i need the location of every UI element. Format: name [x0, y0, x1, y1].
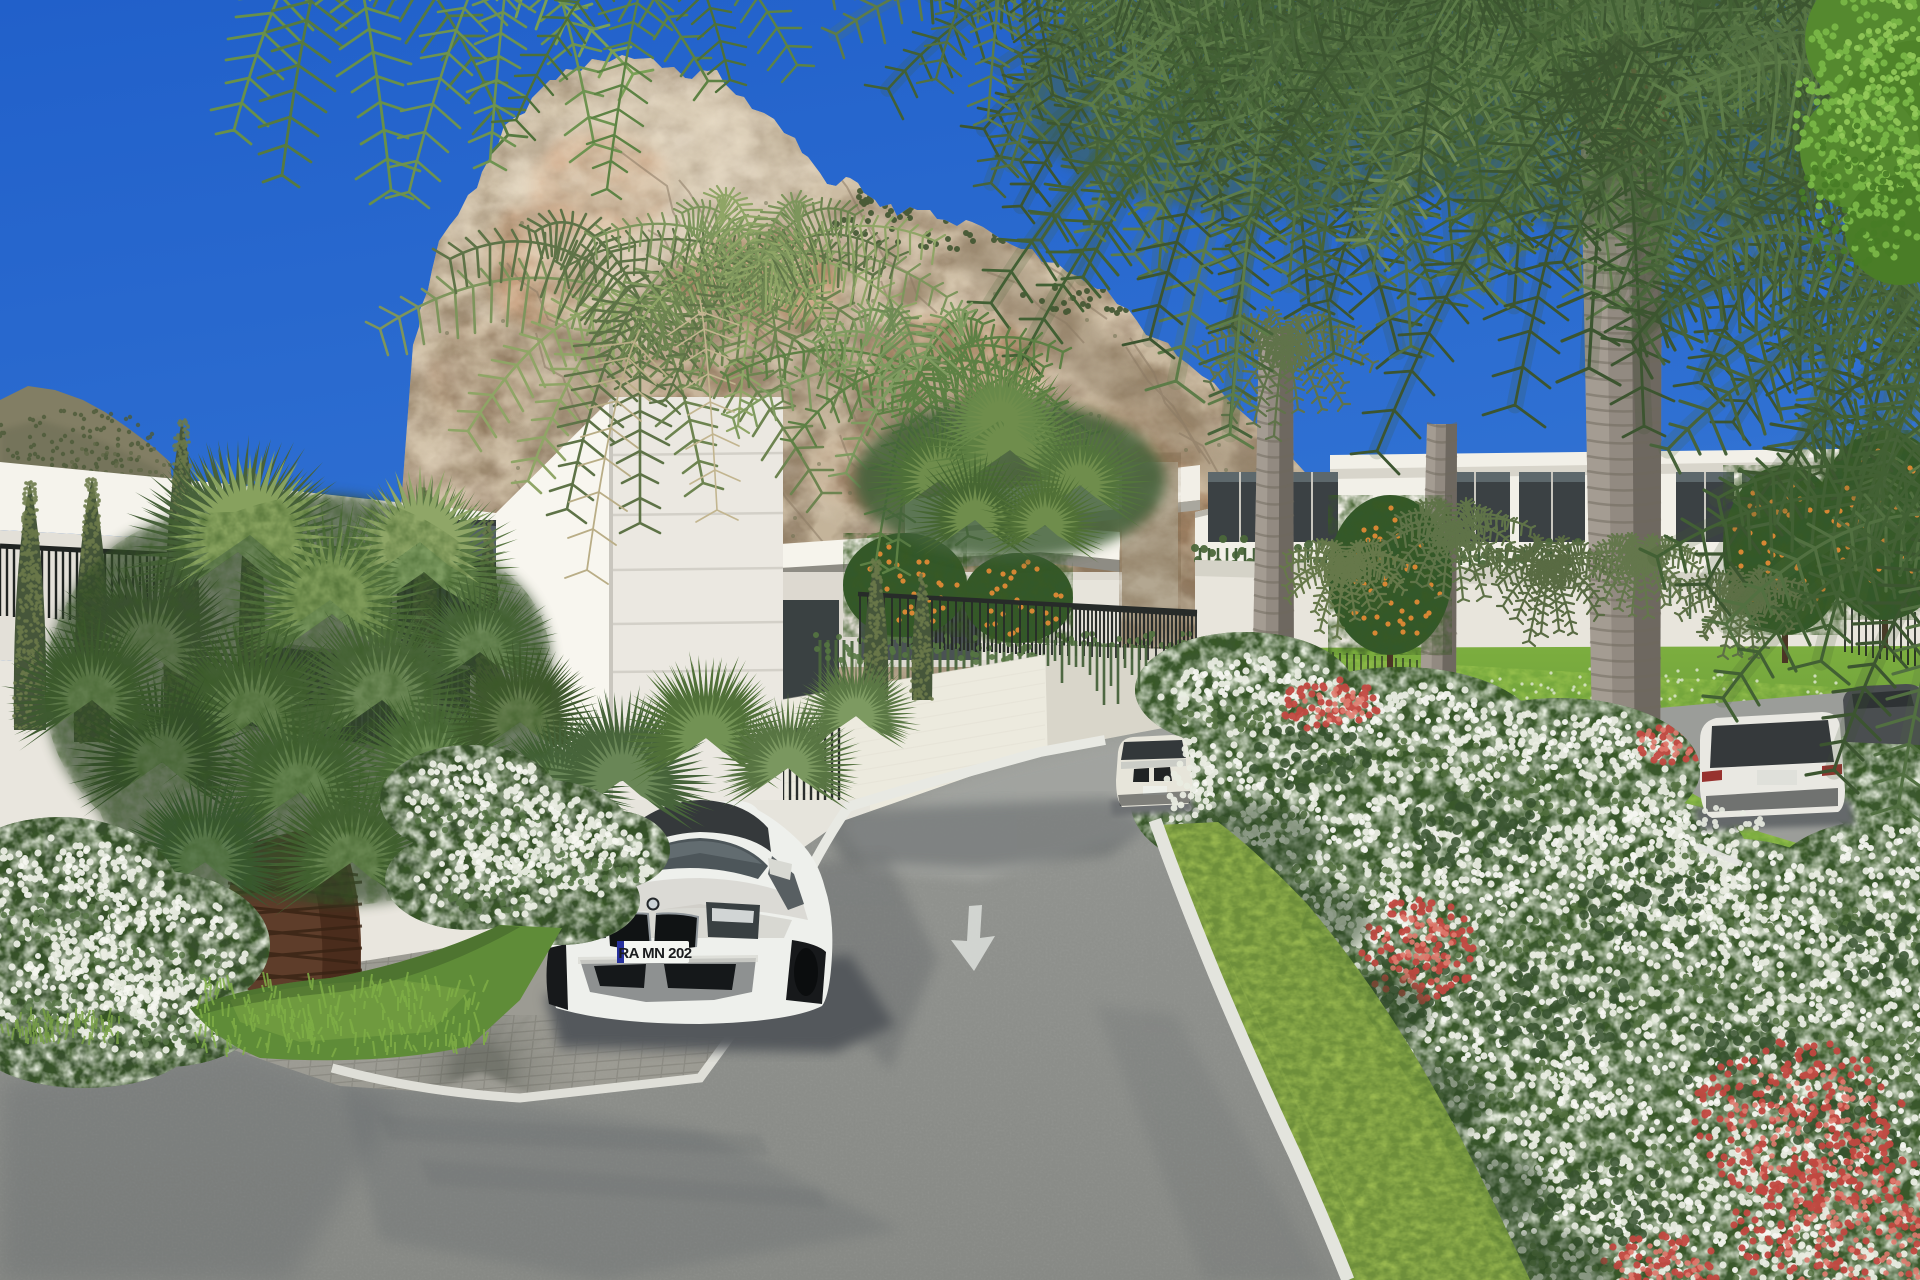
- svg-text:RA MN 202: RA MN 202: [618, 945, 691, 962]
